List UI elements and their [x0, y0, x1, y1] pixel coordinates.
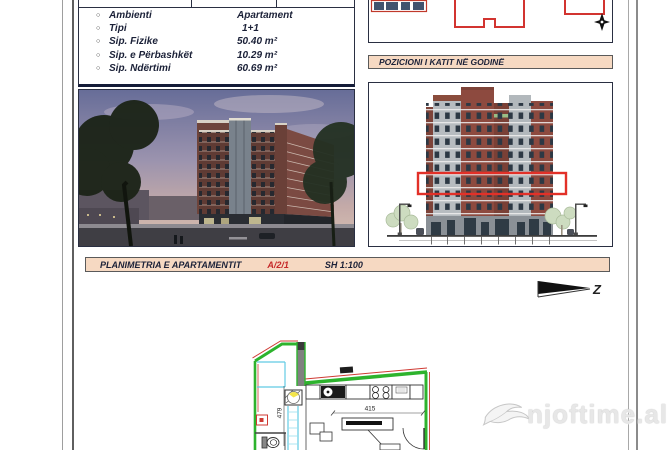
dim-width-label: 415: [365, 406, 376, 413]
info-row: ○ Ambienti Apartament: [79, 10, 354, 23]
compass-icon: [594, 13, 610, 31]
info-value: 50.40 m²: [237, 36, 277, 47]
bullet-icon: ○: [96, 65, 100, 72]
info-label: Sip. e Përbashkët: [109, 50, 192, 61]
info-row: ○ Sip. e Përbashkët 10.29 m²: [79, 50, 354, 63]
elevation-art: [369, 83, 612, 246]
info-value: Apartament: [237, 10, 293, 21]
bullet-icon: ○: [96, 25, 100, 32]
plan-title: PLANIMETRIA E APARTAMENTIT: [100, 260, 241, 270]
bullet-icon: ○: [96, 52, 100, 59]
info-value: 1+1: [242, 23, 259, 34]
cropped-table-header: [79, 0, 354, 8]
render-art: [79, 90, 354, 246]
info-label: Sip. Ndërtimi: [109, 63, 171, 74]
watermark-text: njoftime.al: [527, 399, 668, 430]
page-border-left-outer: [62, 0, 63, 450]
watermark: njoftime.al: [482, 390, 668, 438]
floor-plan-drawing: 415 479: [240, 336, 460, 450]
north-arrow-icon: Z: [535, 277, 603, 303]
street-lamp-icon: [574, 204, 588, 236]
apartment-info-panel: ○ Ambienti Apartament ○ Tipi 1+1 ○ Sip. …: [78, 0, 355, 87]
info-row: ○ Sip. Ndërtimi 60.69 m²: [79, 63, 354, 76]
floor-plan-art: 415 479: [240, 336, 460, 450]
info-value: 60.69 m²: [237, 63, 277, 74]
north-label: Z: [592, 282, 602, 297]
info-label: Ambienti: [109, 10, 152, 21]
position-title: POZICIONI I KATIT NË GODINË: [379, 57, 504, 67]
info-row: ○ Sip. Fizike 50.40 m²: [79, 36, 354, 49]
plan-section-header: PLANIMETRIA E APARTAMENTIT A/2/1 SH 1:10…: [85, 257, 610, 272]
page-border-left-inner: [72, 0, 74, 450]
plan-scale: SH 1:100: [325, 260, 363, 270]
dim-depth-label: 479: [277, 407, 284, 418]
page-border-right-inner: [628, 0, 629, 450]
building-elevation-panel: [368, 82, 613, 247]
apartment-code: A/2/1: [267, 260, 289, 270]
north-arrow: Z: [535, 277, 603, 303]
page-border-right-outer: [636, 0, 638, 450]
footprint-outline: [565, 0, 604, 14]
footprint-outline: [455, 0, 524, 27]
info-label: Tipi: [109, 23, 127, 34]
position-section-header: POZICIONI I KATIT NË GODINË: [368, 55, 613, 69]
bullet-icon: ○: [96, 12, 100, 19]
bullet-icon: ○: [96, 38, 100, 45]
info-row: ○ Tipi 1+1: [79, 23, 354, 36]
key-plan-panel: [368, 0, 613, 43]
plan-sheet: ○ Ambienti Apartament ○ Tipi 1+1 ○ Sip. …: [0, 0, 670, 450]
info-label: Sip. Fizike: [109, 36, 158, 47]
info-value: 10.29 m²: [237, 50, 277, 61]
key-plan-art: [369, 0, 612, 42]
building-render-image: [78, 89, 355, 247]
